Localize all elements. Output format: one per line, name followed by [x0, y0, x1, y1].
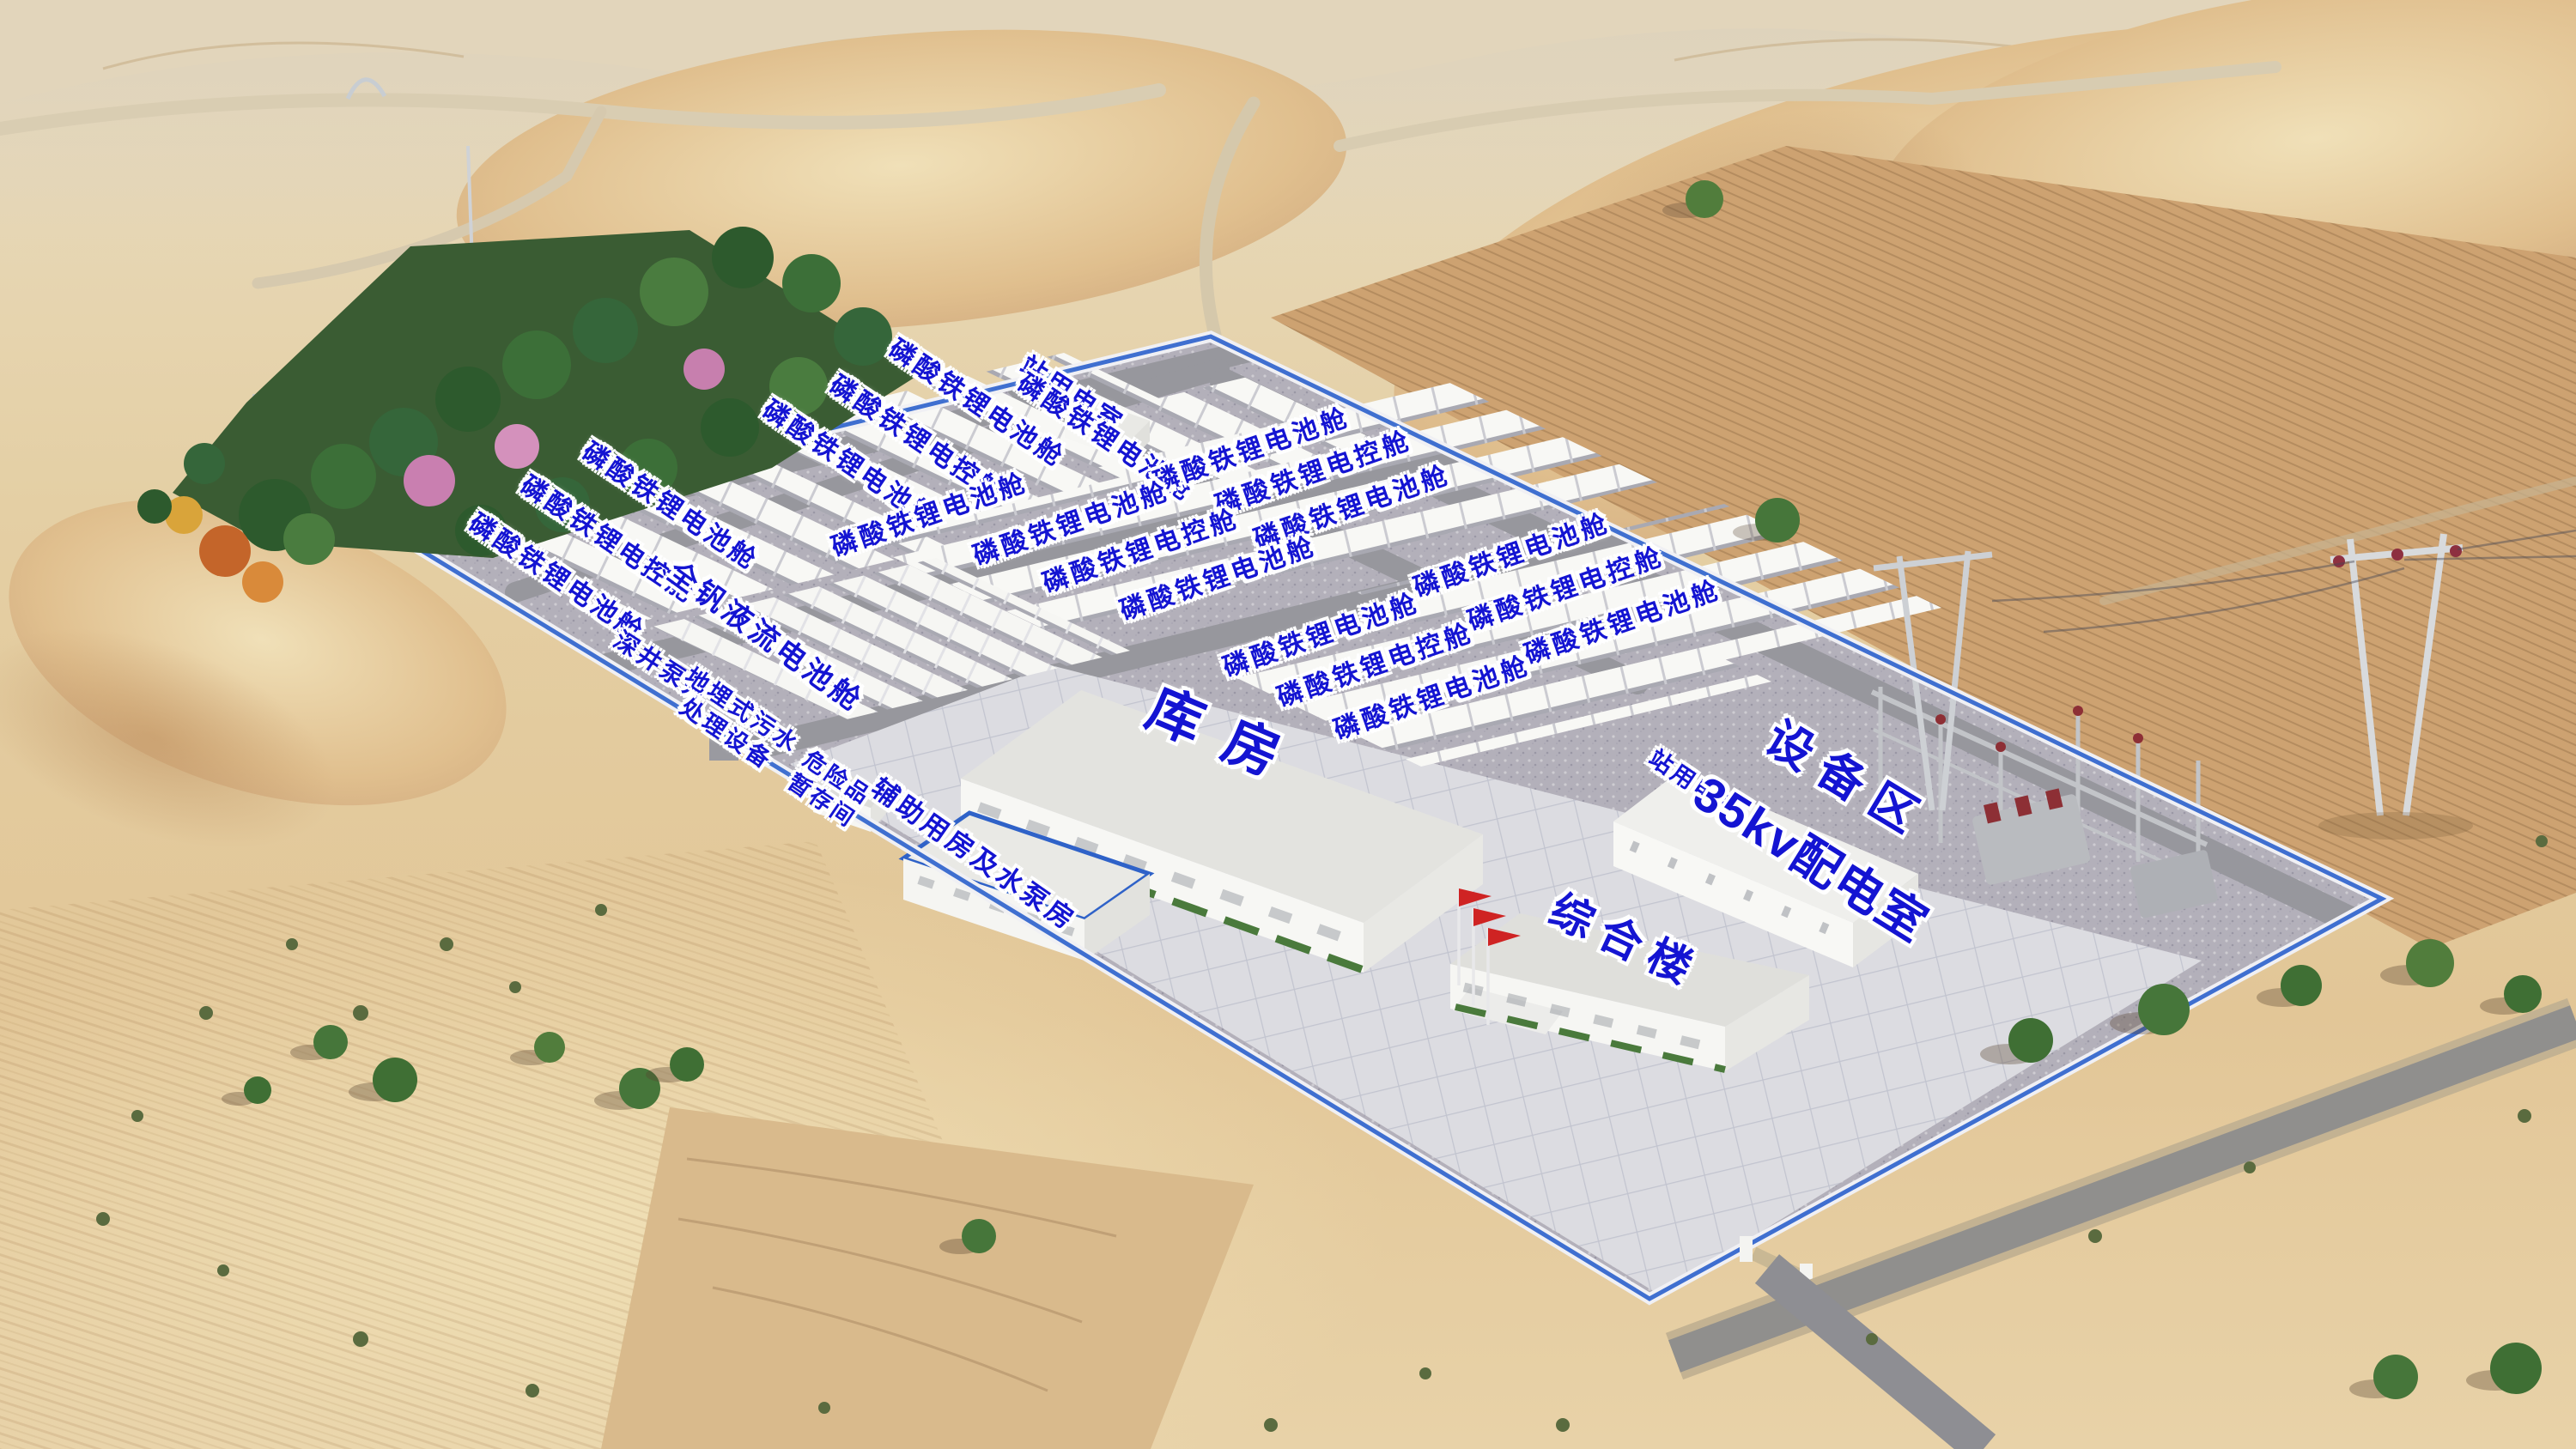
scene-rendering [0, 0, 2576, 1449]
insulator [2391, 549, 2403, 561]
blossom-tree [495, 424, 539, 469]
insulator [2450, 545, 2462, 557]
tower-shadow [2318, 812, 2473, 840]
aerial-rendering: 磷酸铁锂电池舱磷酸铁锂电控舱磷酸铁锂电池舱站用电室磷酸铁锂电池舱磷酸铁锂电池舱磷… [0, 0, 2576, 1449]
blossom-tree [404, 455, 455, 506]
blossom-tree [683, 349, 725, 390]
autumn-tree [242, 561, 283, 603]
autumn-tree [199, 525, 251, 577]
